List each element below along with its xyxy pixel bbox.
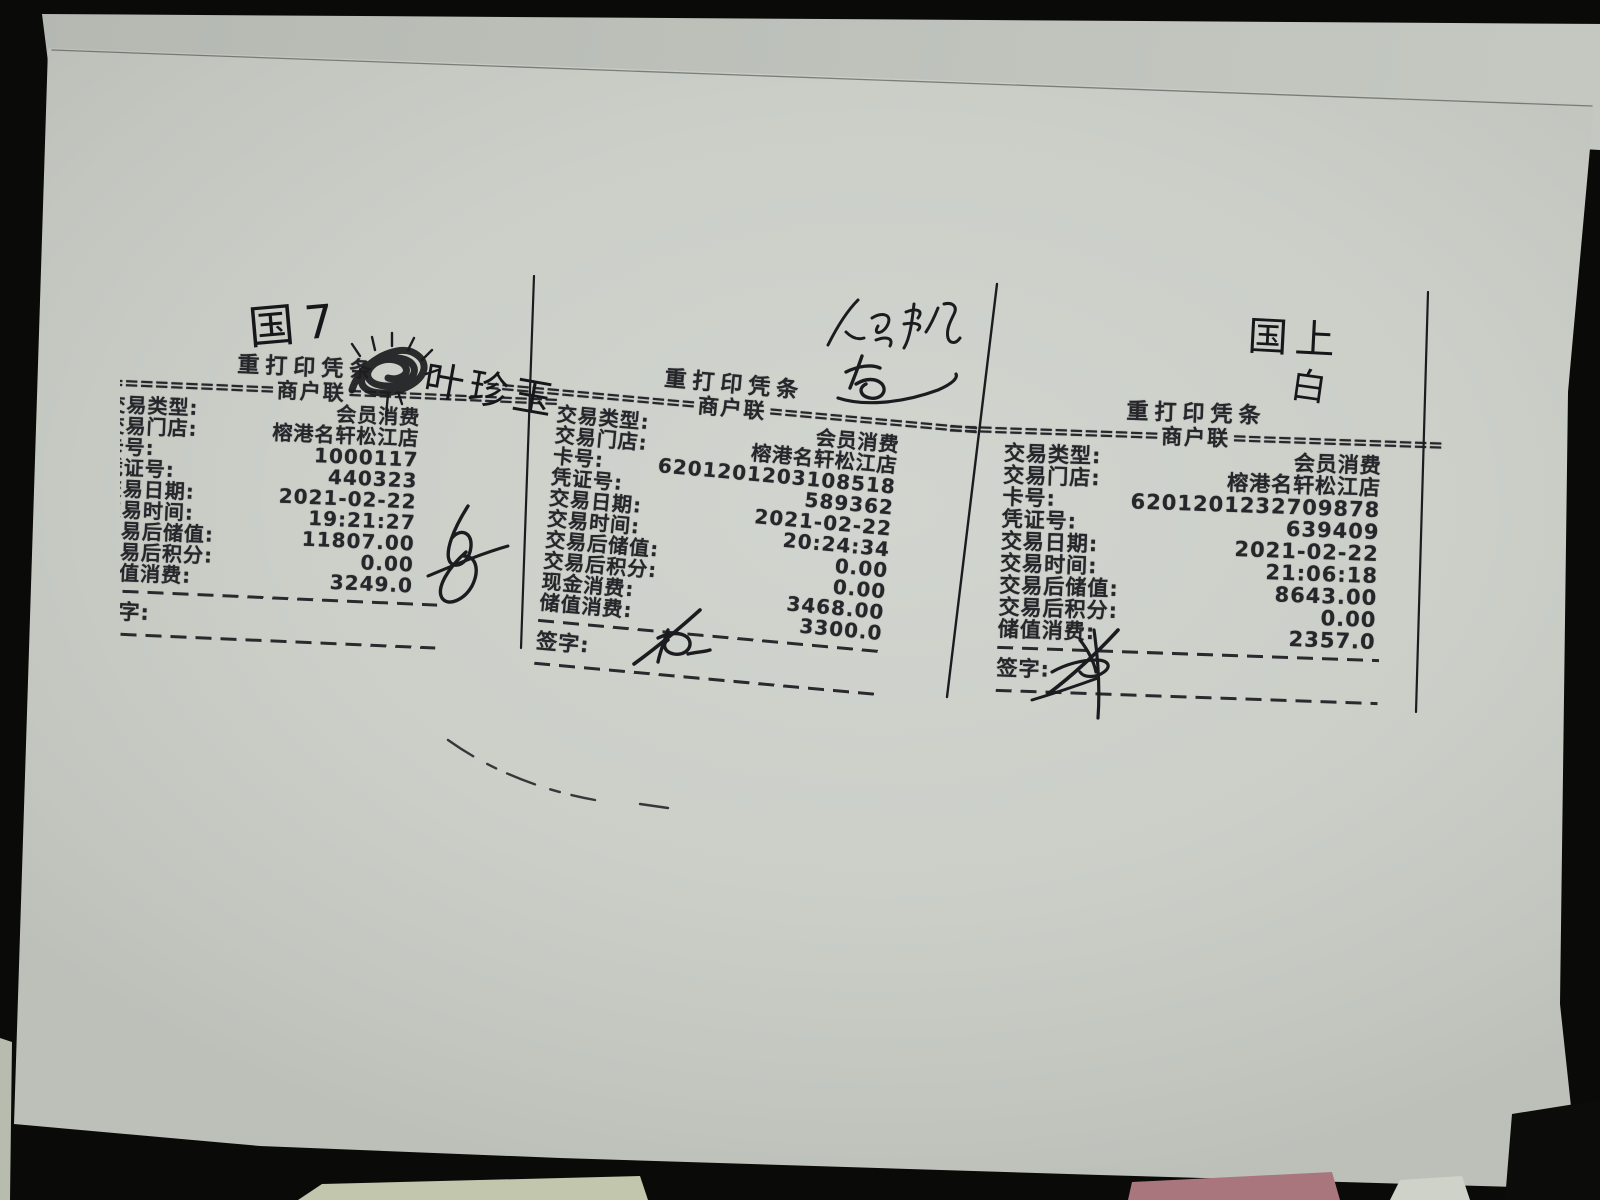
sign-label: 签字: [535, 629, 590, 658]
row-value: 11807.00 [301, 529, 415, 555]
row-label: 储值消费: [997, 618, 1095, 643]
row-label: 储值消费: [120, 562, 192, 587]
row-value: 3300.0 [799, 616, 884, 644]
row-label: 卡号: [1002, 486, 1056, 510]
copy-label: 商户联 [1159, 425, 1233, 450]
row-label: 储值消费: [539, 592, 634, 621]
handwritten-note-topleft: 国7 [245, 284, 346, 358]
receipt-3: 重打印凭条 ==============商户联============== 交易… [996, 396, 1388, 709]
receipt-2: 重打印凭条 ==============商户联============== 交易… [534, 358, 909, 700]
handwritten-note-right-2: 白 [1288, 356, 1331, 413]
sign-label: 签字: [996, 656, 1050, 682]
row-value: 3249.0 [329, 572, 413, 597]
row-value: 8643.00 [1274, 584, 1377, 610]
sign-label: 签字: [120, 599, 150, 625]
copy-label: 商户联 [274, 379, 348, 404]
photo-of-receipts: { "scene": { "background_color": "#0a0a0… [0, 0, 1600, 1200]
row-value: 2357.0 [1288, 628, 1376, 653]
